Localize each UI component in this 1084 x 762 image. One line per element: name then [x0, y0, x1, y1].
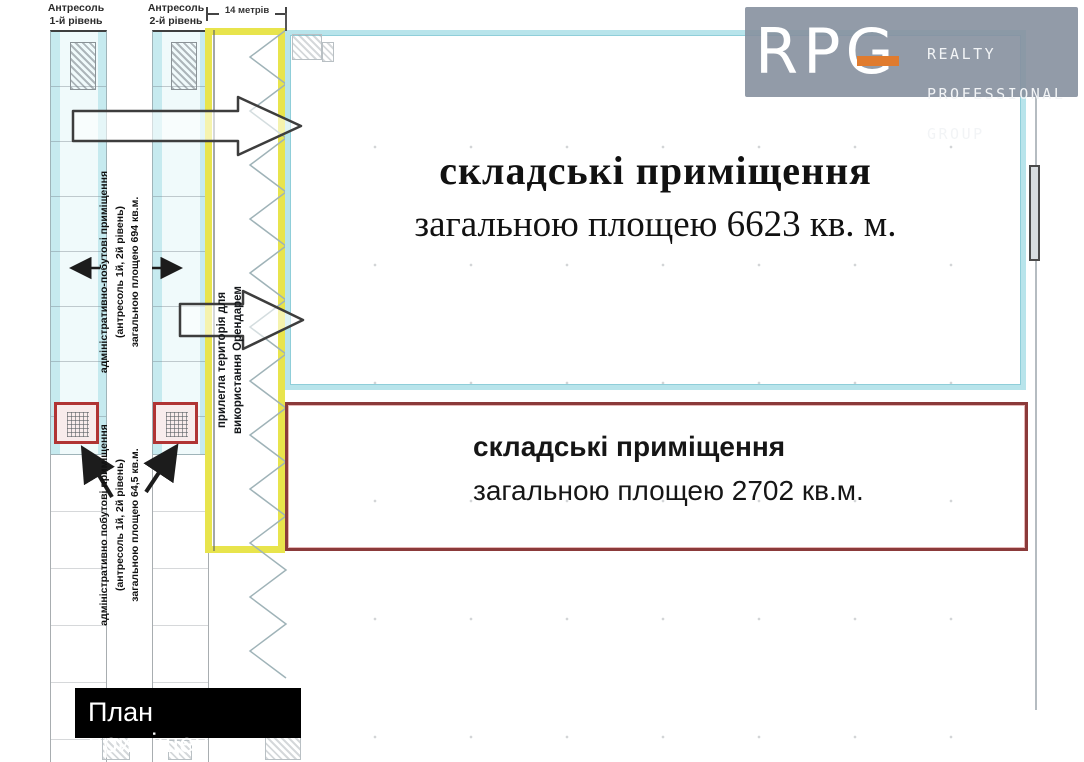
right-door-symbol: [1029, 165, 1040, 261]
warehouse-secondary-subtitle: загальною площею 2702 кв.м.: [473, 475, 864, 507]
cyan-area-corner-detail-2: [322, 42, 334, 62]
rpg-logo-line3: GROUP: [927, 125, 985, 143]
mezzanine-2-label: Антресоль 2-й рівень: [140, 2, 212, 27]
adjacent-territory-annotation: прилегла територія для використання Орен…: [214, 135, 248, 585]
cyan-area-corner-detail: [292, 34, 322, 60]
rpg-logo-line2: PROFESSIONAL: [927, 85, 1065, 103]
admin-box-2-grid: [166, 412, 188, 437]
strip-2-stairs-symbol: [171, 42, 197, 90]
dimension-drop-line: [285, 13, 287, 31]
admin-box-1-grid: [67, 412, 89, 437]
strip-1-stairs-symbol: [70, 42, 96, 90]
rpg-logo-text: REALTY PROFESSIONAL GROUP: [927, 24, 1065, 144]
admin-lower-annotation: адміністративно побутові приміщення (ант…: [97, 410, 147, 640]
warehouse-secondary-zone: складські приміщення загальною площею 27…: [285, 402, 1028, 551]
admin-box-2: [153, 402, 198, 444]
mezzanine-1-label: Антресоль 1-й рівень: [40, 2, 112, 27]
strip-2-floor-lines: [153, 32, 208, 454]
rpg-logo-accent-bar: [857, 56, 899, 66]
warehouse-secondary-title: складські приміщення: [473, 431, 785, 463]
dimension-tick-left: [206, 7, 208, 21]
warehouse-main-subtitle: загальною площею 6623 кв. м.: [290, 203, 1021, 246]
rpg-logo-brand: RPG: [755, 13, 899, 91]
admin-box-1: [54, 402, 99, 444]
warehouse-main-title: складські приміщення: [290, 147, 1021, 194]
dimension-label: 14 метрів: [219, 5, 275, 16]
rpg-logo-line1: REALTY: [927, 45, 996, 63]
building-strip-2: [152, 30, 209, 455]
admin-upper-annotation: адміністративно-побутові приміщення (ант…: [97, 132, 147, 412]
floor-plan-page: складські приміщення загальною площею 66…: [0, 0, 1084, 762]
rpg-logo: RPG REALTY PROFESSIONAL GROUP: [745, 7, 1078, 97]
plan-title-badge: План приміщення: [75, 688, 301, 738]
